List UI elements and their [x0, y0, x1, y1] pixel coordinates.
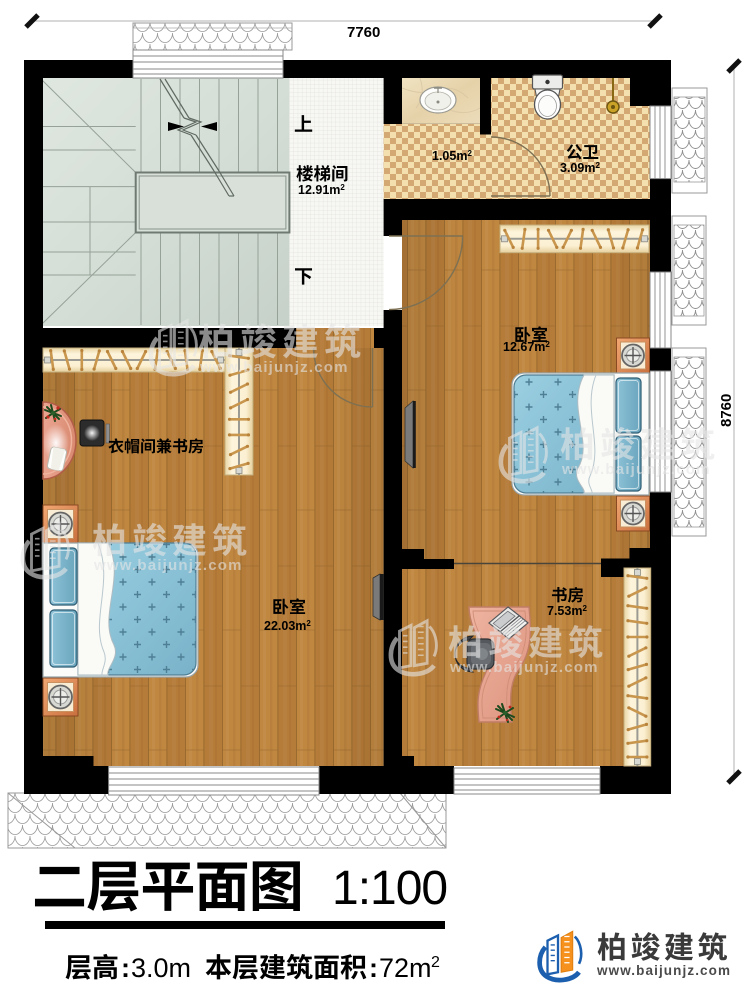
svg-text:www.baijunjz.com: www.baijunjz.com — [596, 963, 731, 978]
svg-text:72m: 72m — [379, 953, 432, 983]
svg-text:www.baijunjz.com: www.baijunjz.com — [449, 659, 599, 676]
svg-text:www.baijunjz.com: www.baijunjz.com — [561, 461, 711, 478]
svg-text:1.05m2: 1.05m2 — [432, 149, 472, 163]
svg-text:3.09m2: 3.09m2 — [560, 161, 600, 175]
svg-text::: : — [121, 953, 130, 983]
svg-text:7.53m2: 7.53m2 — [547, 604, 587, 618]
svg-text:2: 2 — [431, 954, 440, 971]
svg-text:7760: 7760 — [347, 24, 380, 41]
svg-text:www.baijunjz.com: www.baijunjz.com — [93, 557, 243, 574]
svg-text:www.baijunjz.com: www.baijunjz.com — [199, 359, 349, 376]
svg-text:1:100: 1:100 — [332, 862, 447, 915]
svg-text:22.03m2: 22.03m2 — [264, 619, 311, 633]
svg-text:3.0m: 3.0m — [131, 953, 191, 983]
svg-text:12.67m2: 12.67m2 — [503, 340, 550, 354]
svg-text:12.91m2: 12.91m2 — [298, 183, 345, 197]
svg-text::: : — [369, 953, 378, 983]
svg-text:8760: 8760 — [718, 394, 735, 427]
